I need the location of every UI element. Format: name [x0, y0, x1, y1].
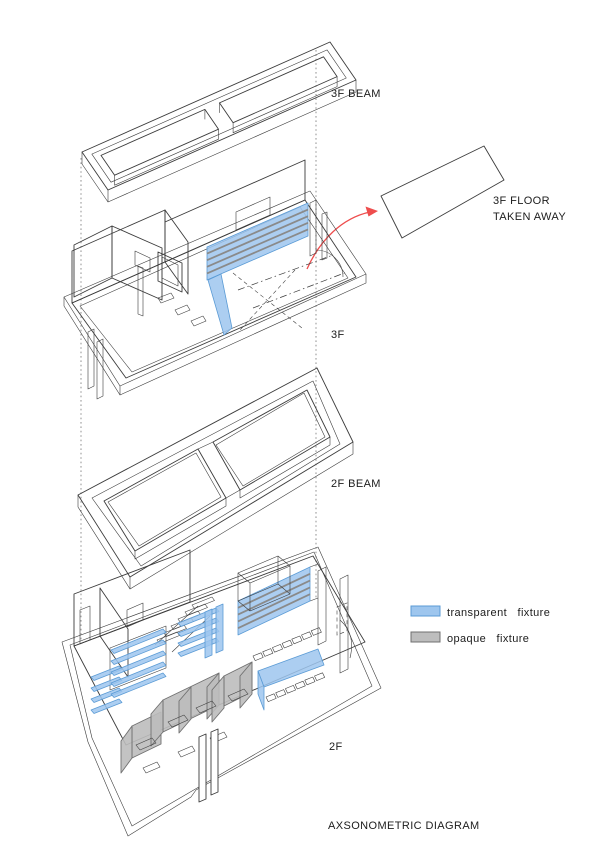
- floor-3f-drawing: [64, 160, 366, 399]
- axonometric-diagram-page: 3F BEAM 3F FLOOR TAKEN AWAY 3F 2F BEAM 2…: [0, 0, 600, 855]
- opaque-fixture-booths: [121, 662, 252, 773]
- diagram-canvas: 3F BEAM 3F FLOOR TAKEN AWAY 3F 2F BEAM 2…: [0, 0, 600, 855]
- beam-2f-drawing: [78, 368, 353, 589]
- label-taken-away-2: TAKEN AWAY: [493, 211, 566, 223]
- beam-3f-drawing: [82, 42, 356, 202]
- legend-label-transparent: transparent fixture: [447, 607, 550, 619]
- labels: 3F BEAM 3F FLOOR TAKEN AWAY 3F 2F BEAM 2…: [328, 88, 566, 832]
- legend: transparent fixture opaque fixture: [411, 606, 550, 645]
- legend-label-opaque: opaque fixture: [447, 633, 529, 645]
- floor-2f-drawing: [62, 547, 381, 836]
- taken-away-floor-plate: [381, 146, 504, 238]
- label-taken-away-1: 3F FLOOR: [493, 195, 550, 207]
- label-2f-beam: 2F BEAM: [331, 478, 381, 490]
- red-arrow: [307, 207, 378, 270]
- transparent-fixture-3f: [207, 203, 308, 335]
- legend-swatch-opaque: [411, 632, 440, 642]
- label-3f: 3F: [331, 329, 345, 341]
- diagram-title: AXSONOMETRIC DIAGRAM: [328, 820, 480, 832]
- legend-swatch-transparent: [411, 606, 440, 616]
- label-3f-beam: 3F BEAM: [331, 88, 381, 100]
- label-2f: 2F: [329, 741, 343, 753]
